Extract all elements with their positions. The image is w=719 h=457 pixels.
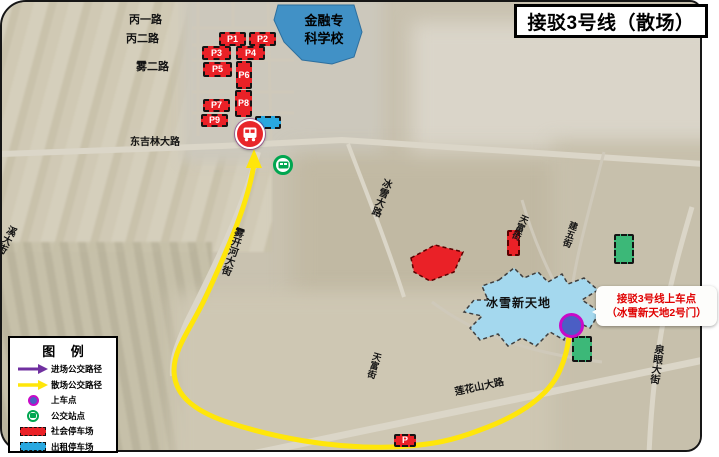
school-label-line1: 金融专 <box>286 12 362 30</box>
route-arrowhead <box>246 149 262 168</box>
road-label-wuer: 雾二路 <box>136 58 169 74</box>
green-lot-gate <box>572 336 592 362</box>
bus-stop-roundel-icon <box>15 410 51 422</box>
boarding-point-marker <box>559 313 584 338</box>
parking-label: P1 <box>227 35 238 44</box>
venue-label: 冰雪新天地 <box>486 294 551 311</box>
parking-label: P7 <box>211 101 222 110</box>
parking-marker-p2: P2 <box>249 32 276 46</box>
legend-row-dispersal-route: 散场公交路径 <box>15 378 111 393</box>
parking-marker-p8: P8 <box>235 90 252 117</box>
parking-marker-p5: P5 <box>203 62 232 77</box>
legend-title: 图 例 <box>15 341 111 360</box>
parking-marker-p4: P4 <box>236 46 265 60</box>
red-dashed-box-icon <box>15 427 51 436</box>
callout-line2: （冰雪新天地2号门） <box>606 306 706 320</box>
callout-line1: 接驳3号线上车点 <box>617 292 696 306</box>
legend-row-enter-route: 进场公交路径 <box>15 362 111 377</box>
school-label: 金融专 科学校 <box>286 12 362 47</box>
parking-marker-p1: P1 <box>219 32 246 46</box>
parking-marker-p6: P6 <box>236 61 252 89</box>
parking-label: P <box>402 436 408 445</box>
boarding-callout: 接驳3号线上车点 （冰雪新天地2号门） <box>596 286 717 326</box>
parking-label: P3 <box>211 49 222 58</box>
legend-label: 公交站点 <box>51 410 85 422</box>
parking-label: P8 <box>238 99 249 108</box>
legend-row-bus-stop: 公交站点 <box>15 409 111 424</box>
green-lot-east <box>614 234 634 264</box>
parking-label: P2 <box>257 35 268 44</box>
bus-stop-icon <box>278 161 289 170</box>
legend-row-social-parking: 社会停车场 <box>15 424 111 439</box>
bus-icon <box>240 124 260 144</box>
parking-label: P9 <box>209 116 220 125</box>
map-title: 接驳3号线（散场） <box>527 8 694 35</box>
legend-label: 出租停车场 <box>51 441 94 453</box>
map-title-box: 接驳3号线（散场） <box>514 4 708 38</box>
blue-dashed-box-icon <box>15 442 51 451</box>
parking-label: P6 <box>238 71 249 80</box>
parking-marker-p7: P7 <box>203 99 230 112</box>
parking-marker-p9: P9 <box>201 114 228 127</box>
legend-label: 社会停车场 <box>51 425 94 437</box>
legend-row-boarding-point: 上车点 <box>15 393 111 408</box>
school-label-line2: 科学校 <box>286 30 362 48</box>
legend-label: 散场公交路径 <box>51 379 102 391</box>
bus-stop-marker <box>273 155 293 175</box>
boarding-circle-icon <box>15 395 51 406</box>
legend-panel: 图 例 进场公交路径 散场公交路径 上车点 公交站点 社会停车场 <box>8 336 118 453</box>
parking-marker-south: P <box>394 434 416 447</box>
yellow-arrow-icon <box>15 380 51 390</box>
shuttle-route-map-page: P1 P2 P3 P4 P5 P6 P7 P8 P9 P <box>0 0 719 457</box>
parking-label: P4 <box>245 49 256 58</box>
bus-terminal-marker <box>235 119 265 149</box>
legend-label: 进场公交路径 <box>51 363 102 375</box>
legend-row-taxi-parking: 出租停车场 <box>15 440 111 455</box>
parking-label: P5 <box>212 65 223 74</box>
parking-marker-p3: P3 <box>202 46 231 60</box>
social-parking-polygon <box>411 245 463 281</box>
road-label-bingyi: 丙一路 <box>129 11 162 27</box>
road-label-binger: 丙二路 <box>126 30 159 46</box>
purple-arrow-icon <box>15 364 51 374</box>
legend-label: 上车点 <box>51 394 77 406</box>
road-label-dongjilin: 东吉林大路 <box>130 133 180 148</box>
